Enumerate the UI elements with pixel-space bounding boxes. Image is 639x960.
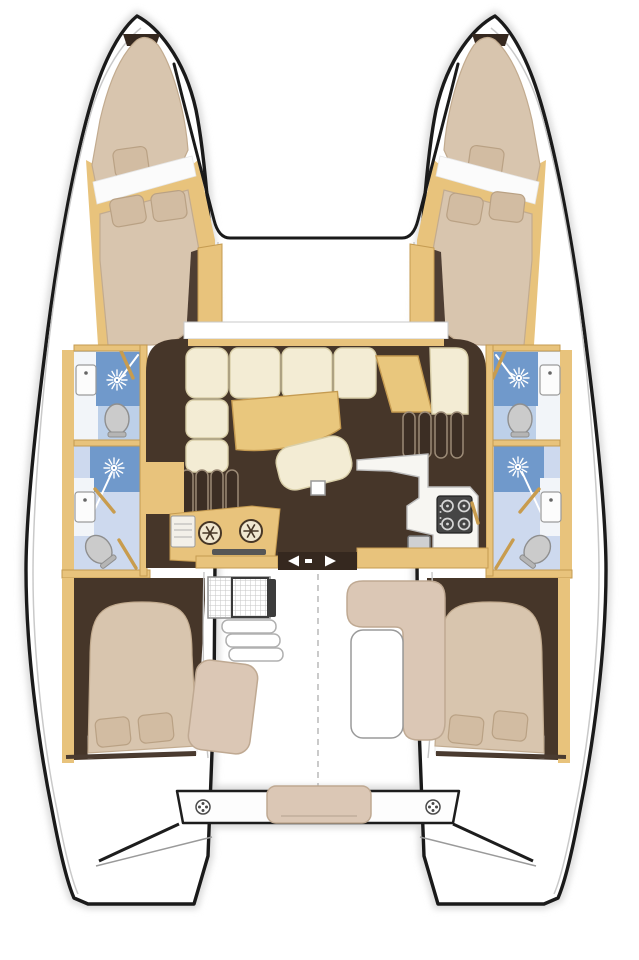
forward-berth-pillow-2-starboard bbox=[488, 191, 525, 223]
head-wall-top-starboard bbox=[487, 345, 560, 351]
cockpit-steps bbox=[222, 620, 283, 661]
cleat-icon-starboard bbox=[426, 800, 440, 814]
stove-knob-2 bbox=[440, 511, 442, 513]
sofa-back-cushion-3 bbox=[334, 348, 376, 398]
cockpit-table-end bbox=[268, 579, 276, 617]
saloon-front-sill bbox=[188, 339, 444, 346]
sofa-arm-cushion-1 bbox=[186, 400, 228, 438]
nav-seat-cushion bbox=[430, 348, 468, 414]
head-wall-mid-starboard bbox=[487, 440, 560, 446]
foredeck bbox=[174, 64, 458, 340]
cockpit-table-port bbox=[208, 577, 276, 618]
oven bbox=[171, 516, 195, 547]
aft-berth-pillow-1-starboard bbox=[448, 714, 485, 745]
trampoline-outline bbox=[174, 64, 458, 238]
cockpit-seat-port bbox=[187, 659, 260, 756]
forward-berth-pillow-2-port bbox=[150, 190, 188, 222]
head-wall-mid-port bbox=[74, 440, 147, 446]
head-wall-inboard-starboard bbox=[486, 345, 493, 576]
saloon-front-window-band bbox=[184, 322, 448, 339]
head-wall-top-port bbox=[74, 345, 147, 351]
head-wall-bottom-port bbox=[62, 570, 150, 578]
stove-knob-3 bbox=[440, 517, 442, 519]
aft-berth-pillow-2-starboard bbox=[492, 710, 529, 741]
aft-platform bbox=[177, 786, 459, 823]
door-arrow-dash bbox=[305, 559, 312, 563]
toilet-forward-port bbox=[105, 404, 129, 437]
sink-aft-starboard bbox=[541, 492, 561, 522]
cockpit-table-starboard bbox=[351, 630, 403, 738]
gunwale-strip-aft-starboard bbox=[558, 578, 570, 763]
heads-starboard bbox=[486, 345, 572, 578]
cabinet-handle bbox=[212, 549, 266, 555]
head-wall-bottom-starboard bbox=[486, 570, 572, 578]
aft-bench bbox=[267, 786, 371, 823]
cleat-icon-port bbox=[196, 800, 210, 814]
sink-aft-port bbox=[75, 492, 95, 522]
sofa-back-cushion-1 bbox=[230, 348, 280, 398]
boat-floor-plan-canvas bbox=[0, 0, 639, 960]
catamaran-floor-plan bbox=[0, 0, 639, 960]
sink-forward-port bbox=[76, 365, 96, 395]
aft-berth-pillow-2-port bbox=[138, 712, 175, 743]
door-frame-port bbox=[196, 556, 278, 568]
gunwale-strip-starboard bbox=[560, 350, 572, 572]
forward-berth-pillow-1-port bbox=[109, 194, 147, 227]
heads-port bbox=[62, 345, 150, 578]
cockpit bbox=[187, 572, 445, 786]
head-wall-inboard-port bbox=[140, 345, 147, 576]
sofa-back-cushion-2 bbox=[282, 348, 332, 398]
stove-knob-4 bbox=[440, 523, 442, 525]
aft-cabin-port bbox=[62, 578, 205, 763]
sink-forward-starboard bbox=[540, 365, 560, 395]
sofa-arm-cushion-2 bbox=[186, 440, 228, 472]
toilet-forward-starboard bbox=[508, 404, 532, 437]
galley-counter-wood bbox=[357, 548, 488, 568]
sofa-corner-cushion bbox=[186, 348, 228, 398]
aft-berth-pillow-1-port bbox=[95, 716, 132, 747]
gunwale-strip-aft-port bbox=[62, 578, 74, 763]
mast-post bbox=[311, 481, 325, 495]
saloon bbox=[146, 339, 488, 570]
sideboard-wood-port bbox=[146, 462, 184, 514]
gunwale-strip-port bbox=[62, 350, 74, 572]
aft-cabin-starboard bbox=[427, 578, 570, 763]
stove-knob-1 bbox=[440, 505, 442, 507]
forward-berth-pillow-1-starboard bbox=[446, 192, 484, 225]
